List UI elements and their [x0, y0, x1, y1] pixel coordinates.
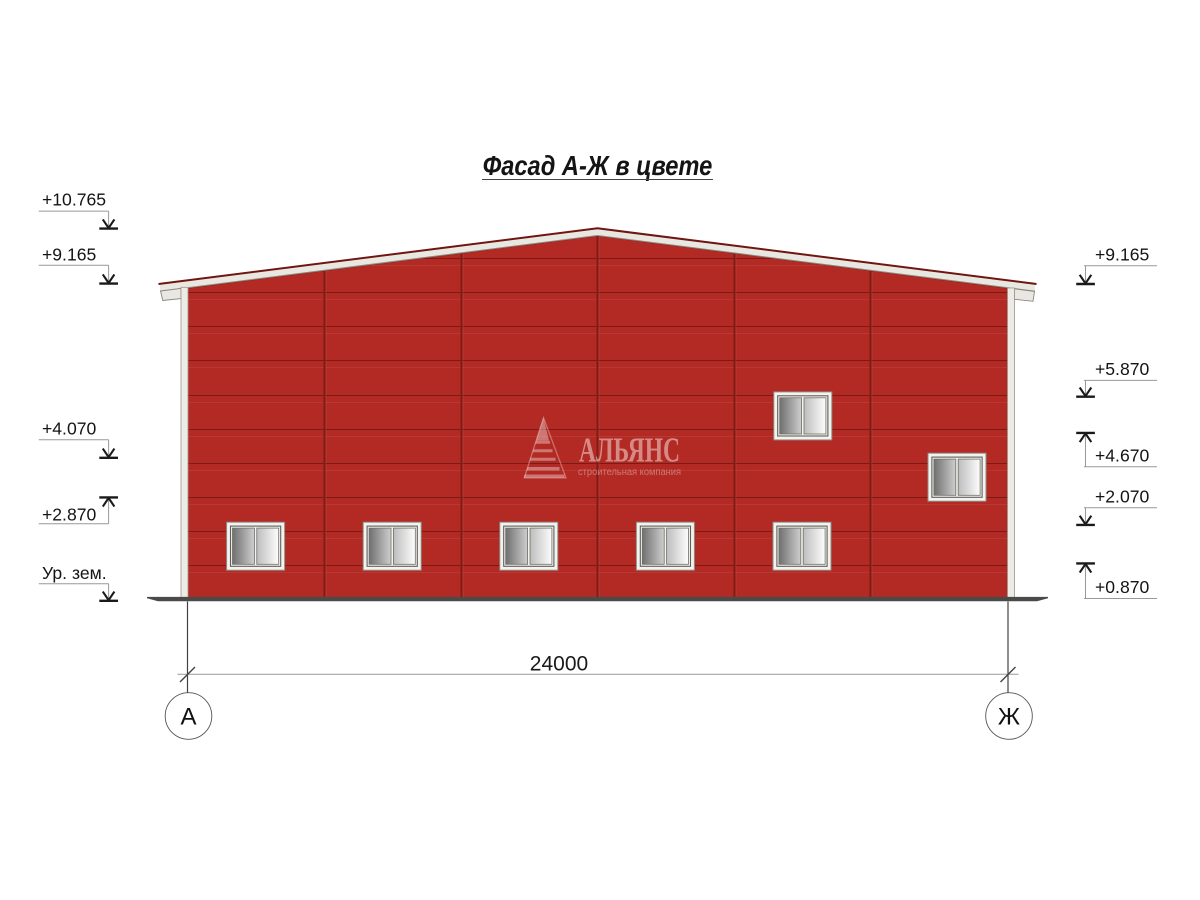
svg-text:А: А	[180, 704, 196, 731]
svg-text:АЛЬЯНС: АЛЬЯНС	[579, 432, 680, 470]
svg-text:+9.165: +9.165	[42, 245, 97, 265]
svg-text:+9.165: +9.165	[1095, 244, 1150, 264]
svg-text:+5.870: +5.870	[1095, 359, 1150, 379]
svg-text:Фасад А-Ж в цвете: Фасад А-Ж в цвете	[483, 150, 713, 181]
svg-text:+0.870: +0.870	[1095, 577, 1150, 597]
svg-text:Ж: Ж	[998, 704, 1020, 731]
svg-text:+4.070: +4.070	[42, 419, 97, 439]
svg-text:+2.870: +2.870	[42, 505, 97, 525]
svg-text:+10.765: +10.765	[42, 190, 106, 210]
svg-text:+2.070: +2.070	[1095, 486, 1150, 506]
svg-text:+4.670: +4.670	[1095, 445, 1150, 465]
svg-text:Ур. зем.: Ур. зем.	[42, 563, 107, 583]
svg-text:строительная компания: строительная компания	[578, 467, 681, 478]
svg-text:24000: 24000	[530, 653, 588, 676]
